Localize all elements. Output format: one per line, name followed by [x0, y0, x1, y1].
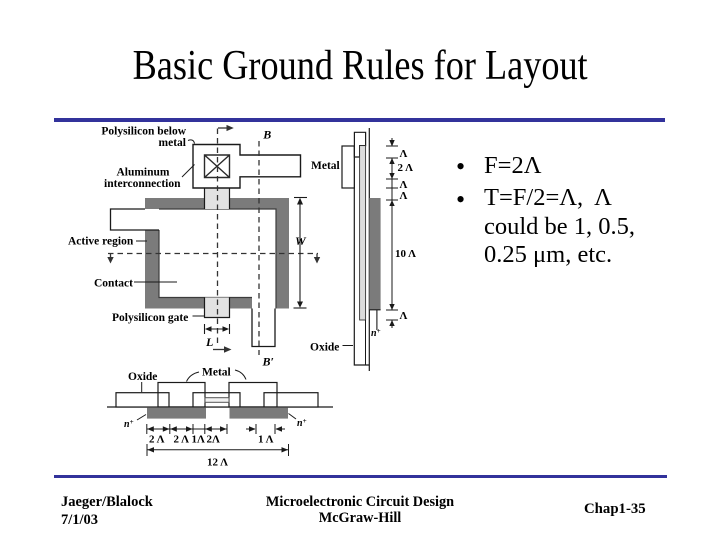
svg-text:n+: n+ [124, 418, 134, 430]
svg-text:1 Λ: 1 Λ [258, 434, 274, 446]
svg-text:n+: n+ [371, 327, 381, 339]
svg-text:Polysilicon gate: Polysilicon gate [112, 312, 188, 324]
svg-text:2 Λ: 2 Λ [398, 162, 414, 174]
svg-text:W: W [295, 234, 307, 248]
svg-text:12 Λ: 12 Λ [207, 457, 228, 469]
svg-text:Λ: Λ [400, 190, 408, 202]
svg-text:10 Λ: 10 Λ [395, 248, 416, 260]
svg-text:Oxide: Oxide [128, 371, 157, 383]
svg-text:Polysilicon below: Polysilicon below [101, 126, 186, 138]
svg-text:Λ: Λ [400, 310, 408, 322]
svg-text:Contact: Contact [94, 278, 133, 290]
svg-text:Metal: Metal [202, 367, 231, 379]
svg-text:n+: n+ [297, 417, 307, 429]
svg-text:L: L [205, 335, 213, 349]
svg-text:B′: B′ [262, 355, 274, 369]
svg-text:Active region: Active region [68, 236, 134, 248]
svg-text:B: B [262, 128, 271, 142]
svg-text:Metal: Metal [311, 160, 340, 172]
svg-text:Oxide: Oxide [310, 342, 339, 354]
svg-text:2 Λ: 2 Λ [174, 434, 190, 446]
svg-text:Λ: Λ [400, 148, 408, 160]
svg-text:2 Λ: 2 Λ [149, 434, 165, 446]
svg-text:2Λ: 2Λ [207, 434, 221, 446]
svg-text:interconnection: interconnection [104, 178, 181, 190]
svg-text:1Λ: 1Λ [192, 434, 206, 446]
svg-text:metal: metal [159, 137, 186, 149]
svg-text:Aluminum: Aluminum [116, 167, 169, 179]
